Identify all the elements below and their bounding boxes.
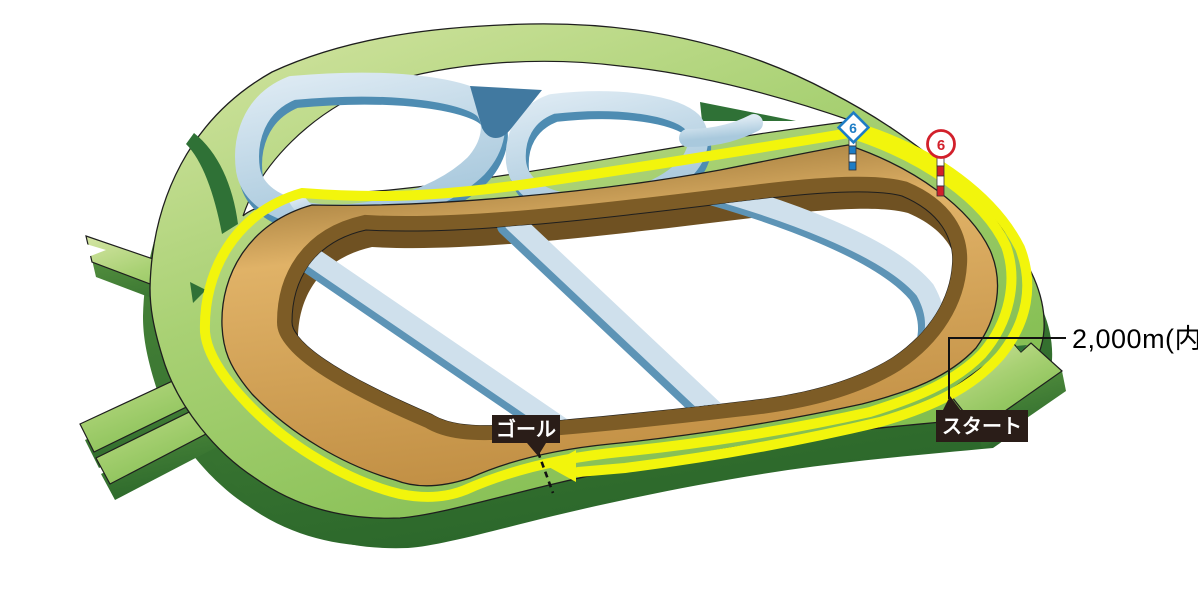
svg-text:6: 6 [937, 137, 945, 154]
racecourse-diagram: ゴール 2,000m(内) スタート 6 6 [0, 0, 1198, 616]
svg-text:6: 6 [849, 120, 857, 136]
goal-label: ゴール [496, 417, 556, 441]
start-label: スタート [942, 415, 1022, 438]
course-illustration: ゴール 2,000m(内) スタート 6 6 [0, 0, 1198, 616]
distance-label: 2,000m(内) [1072, 324, 1198, 354]
